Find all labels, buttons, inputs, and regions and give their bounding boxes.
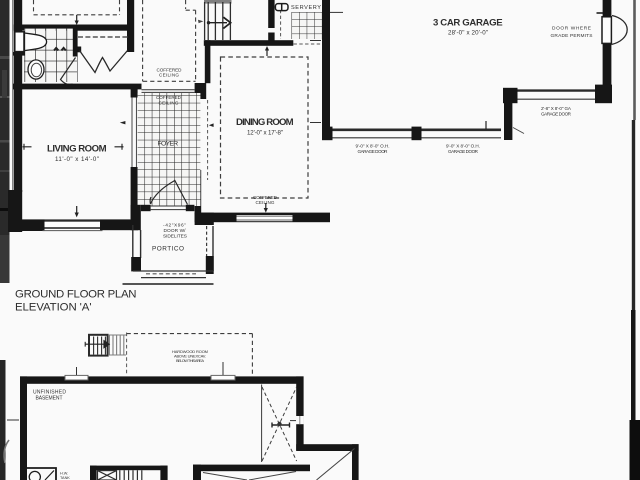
svg-text:9'-0" X 8'-0" O.H.: 9'-0" X 8'-0" O.H. [356,144,390,149]
svg-text:BELOW THIS AREA: BELOW THIS AREA [176,358,204,363]
svg-text:LIVING ROOM: LIVING ROOM [47,144,107,155]
svg-text:11'-0" x 14'-0": 11'-0" x 14'-0" [55,156,99,163]
svg-text:DINING ROOM: DINING ROOM [236,117,294,128]
svg-text:FOYER: FOYER [158,141,179,148]
svg-text:CEILING: CEILING [159,73,179,78]
svg-text:GRADE PERMITS: GRADE PERMITS [551,33,593,39]
svg-text:CEILING: CEILING [159,101,179,106]
svg-text:TANK: TANK [60,476,70,480]
svg-text:2'-8" X 8'-0" GA: 2'-8" X 8'-0" GA [541,106,572,111]
svg-text:GARAGE DOOR: GARAGE DOOR [448,149,479,154]
svg-text:GROUND FLOOR PLAN: GROUND FLOOR PLAN [15,289,137,301]
svg-text:3 CAR GARAGE: 3 CAR GARAGE [433,18,503,29]
svg-text:-42"X96": -42"X96" [163,223,186,229]
svg-text:DOOR W/: DOOR W/ [164,228,187,234]
svg-text:GARAGE DOOR: GARAGE DOOR [541,111,572,116]
svg-text:28'-0" x 20'-0": 28'-0" x 20'-0" [448,30,488,37]
svg-text:9'-0" X 8'-0" O.H.: 9'-0" X 8'-0" O.H. [446,144,480,149]
svg-text:ELEVATION 'A': ELEVATION 'A' [15,302,92,314]
svg-text:DOOR WHERE: DOOR WHERE [552,26,591,32]
svg-text:BASEMENT: BASEMENT [36,396,63,402]
svg-text:12'-0" x 17'-8": 12'-0" x 17'-8" [247,130,283,137]
svg-text:COFFERED: COFFERED [156,95,182,100]
svg-text:GARAGE DOOR: GARAGE DOOR [358,149,389,154]
svg-text:PORTICO: PORTICO [152,246,185,253]
svg-text:SERVERY: SERVERY [291,5,321,11]
svg-text:SIDELITES: SIDELITES [163,234,187,240]
